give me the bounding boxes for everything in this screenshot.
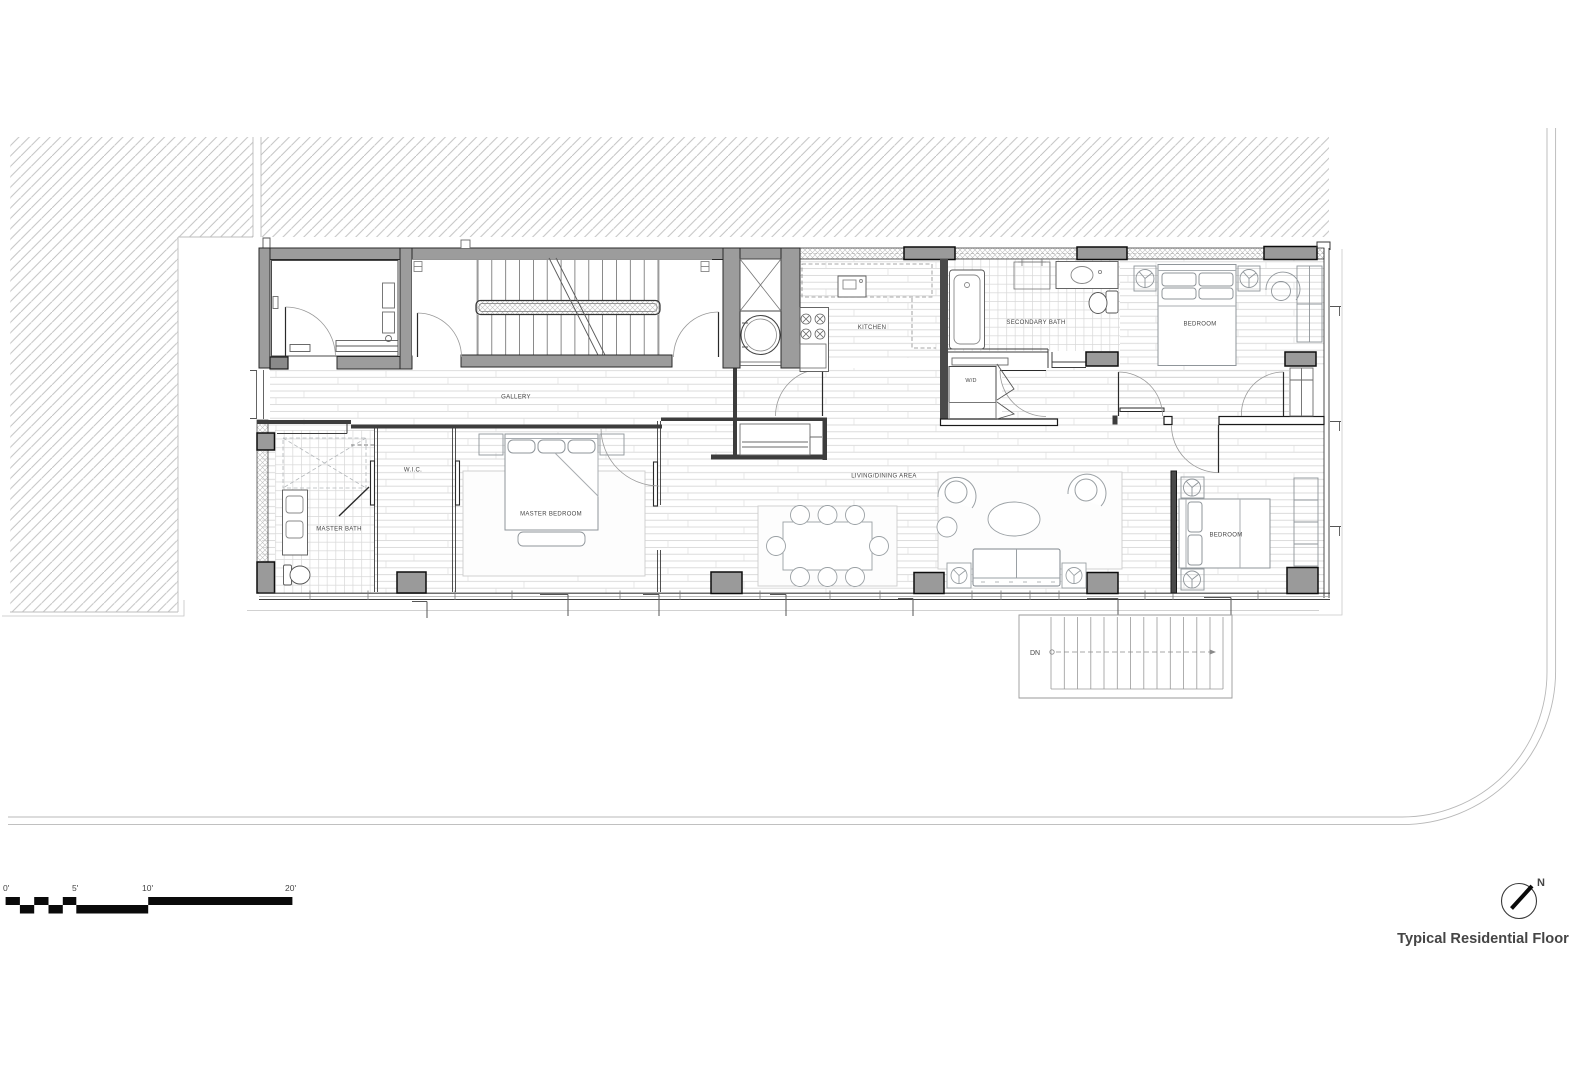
svg-text:GALLERY: GALLERY bbox=[501, 395, 531, 401]
svg-text:W.I.C.: W.I.C. bbox=[404, 468, 422, 474]
svg-text:Typical Residential Floor: Typical Residential Floor bbox=[1397, 931, 1569, 947]
svg-text:0': 0' bbox=[3, 883, 10, 893]
svg-text:W/D: W/D bbox=[965, 378, 976, 384]
svg-text:5': 5' bbox=[72, 883, 79, 893]
svg-text:KITCHEN: KITCHEN bbox=[858, 325, 886, 331]
svg-text:MASTER BEDROOM: MASTER BEDROOM bbox=[520, 512, 582, 518]
svg-text:DN: DN bbox=[1030, 650, 1040, 657]
svg-text:10': 10' bbox=[142, 883, 153, 893]
svg-text:BEDROOM: BEDROOM bbox=[1209, 533, 1242, 539]
svg-text:LIVING/DINING AREA: LIVING/DINING AREA bbox=[851, 474, 916, 480]
svg-text:BEDROOM: BEDROOM bbox=[1183, 322, 1216, 328]
svg-text:MASTER BATH: MASTER BATH bbox=[316, 527, 362, 533]
svg-text:20': 20' bbox=[285, 883, 296, 893]
svg-text:SECONDARY BATH: SECONDARY BATH bbox=[1006, 320, 1065, 326]
svg-text:N: N bbox=[1537, 877, 1545, 889]
